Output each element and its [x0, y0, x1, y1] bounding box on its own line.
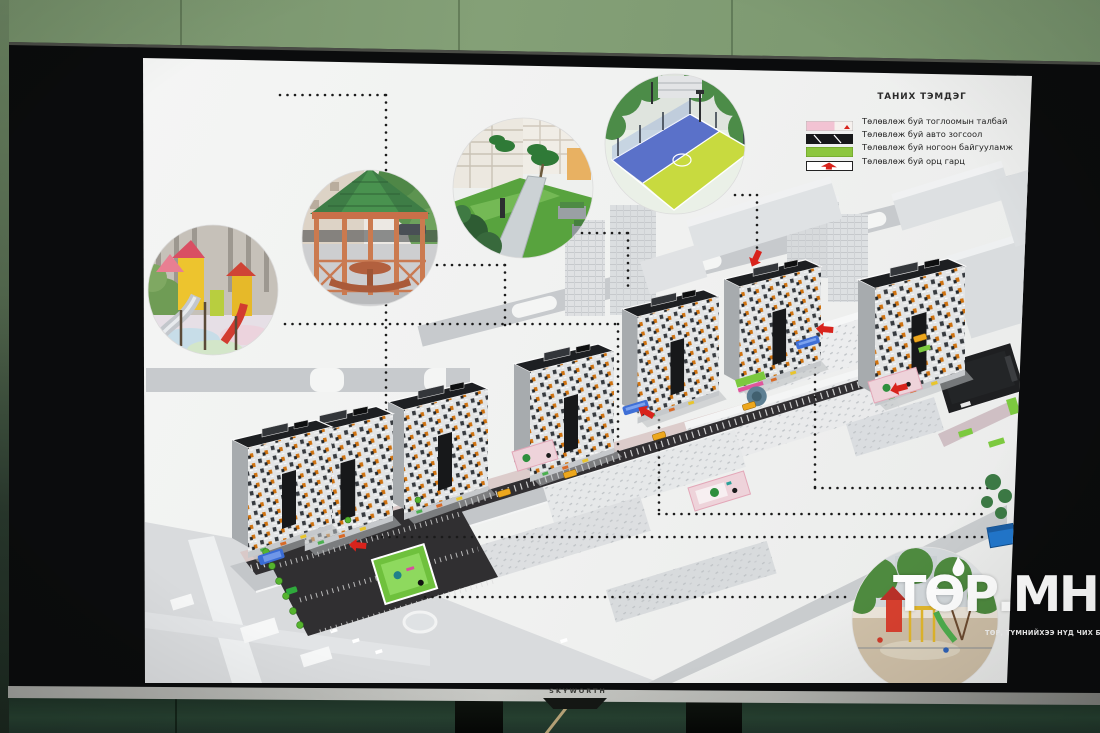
photo-of-tv-with-masterplan-slide: ТАНИХ ТЭМДЭГ Төлөвлөж буй тоглоомын талб… [0, 0, 1100, 733]
masterplan-render [0, 0, 1100, 733]
dumpster [987, 523, 1016, 547]
pink-playground-swatch [806, 116, 853, 126]
tv-brand-label: SKYWORTH [518, 687, 638, 695]
white-entrance-arrow-swatch [806, 156, 853, 166]
inset-sport-court-photo [598, 66, 764, 214]
legend-label: Төлөвлөж буй авто зогсоол [862, 129, 982, 139]
wall-left-edge [0, 0, 9, 733]
legend-item-playground: Төлөвлөж буй тоглоомын талбай [806, 114, 1013, 127]
legend-label: Төлөвлөж буй ногоон байгууламж [862, 142, 1013, 152]
watermark-logo: ТӨР.МН ТӨР, ТҮМНИЙХЭЭ НҮД ЧИХ БОЛНО [893, 570, 1097, 619]
legend-label: Төлөвлөж буй орц гарц [862, 156, 965, 166]
presentation-slide: ТАНИХ ТЭМДЭГ Төлөвлөж буй тоглоомын талб… [0, 0, 1100, 733]
legend-item-parking: Төлөвлөж буй авто зогсоол [806, 127, 1013, 140]
legend-item-green: Төлөвлөж буй ногоон байгууламж [806, 141, 1013, 154]
roundabout [404, 612, 436, 632]
watermark-brand: ТӨР.МН [893, 570, 1097, 619]
legend-title: ТАНИХ ТЭМДЭГ [842, 92, 1002, 102]
legend-label: Төлөвлөж буй тоглоомын талбай [862, 116, 1007, 126]
inset-playground-photo [139, 225, 280, 360]
legend-item-entrance: Төлөвлөж буй орц гарц [806, 154, 1013, 167]
black-hatched-swatch [806, 129, 853, 139]
tv-leg [455, 701, 503, 733]
tv-leg [686, 701, 742, 733]
cabinet-seam [175, 695, 177, 733]
inset-gazebo-photo [302, 158, 456, 308]
tv-stand-mount [543, 698, 607, 709]
green-swatch [806, 142, 853, 152]
watermark-tagline: ТӨР, ТҮМНИЙХЭЭ НҮД ЧИХ БОЛНО [985, 629, 1100, 637]
trees [981, 474, 1012, 519]
flame-icon [945, 555, 969, 589]
